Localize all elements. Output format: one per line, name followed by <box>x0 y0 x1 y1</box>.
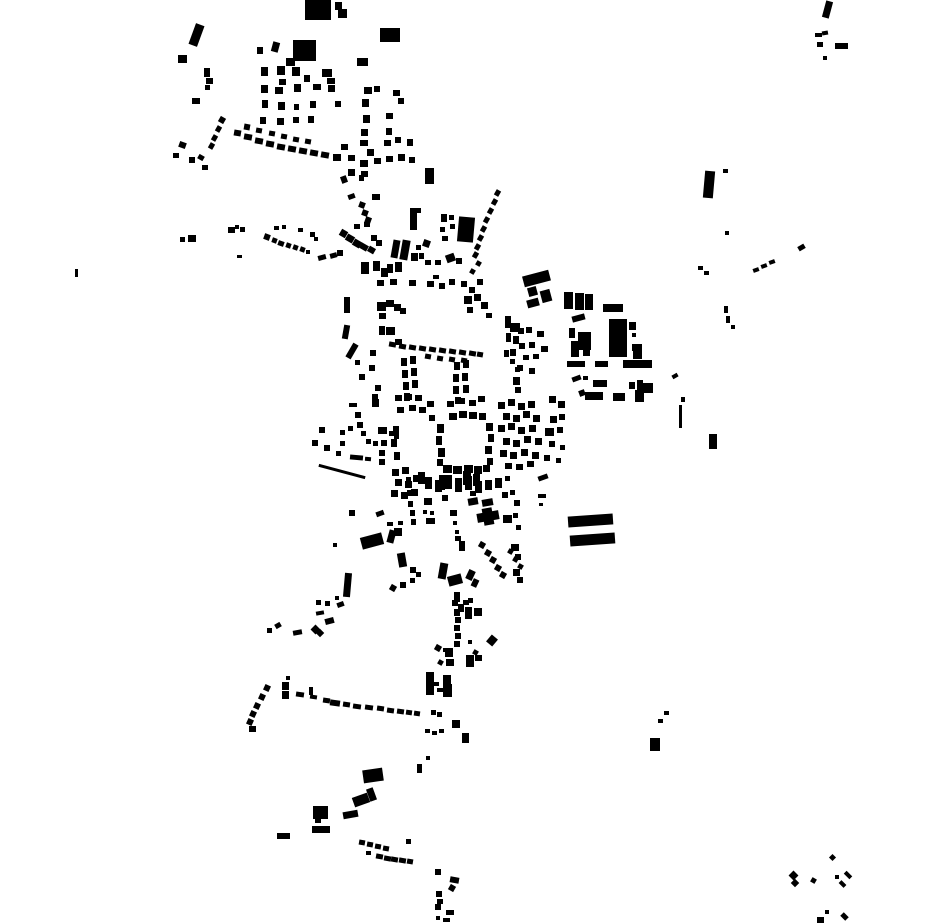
building-footprint <box>348 155 355 161</box>
building-footprint <box>410 510 415 516</box>
building-footprint <box>294 84 301 92</box>
building-footprint <box>349 510 355 516</box>
building-footprint <box>261 85 268 93</box>
building-footprint <box>835 875 839 879</box>
building-footprint <box>329 252 337 259</box>
building-footprint <box>575 293 584 310</box>
building-footprint <box>246 718 254 726</box>
building-footprint <box>395 479 402 486</box>
building-footprint <box>439 475 445 490</box>
building-footprint <box>593 380 607 387</box>
building-footprint <box>308 116 314 123</box>
building-footprint <box>556 458 561 463</box>
building-footprint <box>486 207 493 215</box>
building-footprint <box>416 245 421 250</box>
building-footprint <box>373 441 378 446</box>
building-footprint <box>437 659 444 666</box>
building-footprint <box>397 407 404 413</box>
building-footprint <box>454 625 460 631</box>
building-footprint <box>503 515 512 523</box>
building-footprint <box>723 169 728 173</box>
building-footprint <box>522 269 551 287</box>
building-footprint <box>288 145 297 152</box>
building-footprint <box>263 233 271 241</box>
building-footprint <box>400 582 406 588</box>
building-footprint <box>379 459 385 465</box>
building-footprint <box>260 117 266 124</box>
building-footprint <box>474 294 481 301</box>
building-footprint <box>523 355 529 360</box>
building-footprint <box>537 473 548 481</box>
building-footprint <box>503 438 510 445</box>
building-footprint <box>412 380 418 388</box>
building-footprint <box>462 733 469 743</box>
building-footprint <box>294 104 299 110</box>
building-footprint <box>415 208 421 213</box>
building-footprint <box>416 572 421 577</box>
building-footprint <box>324 445 330 451</box>
building-footprint <box>336 600 344 607</box>
building-footprint <box>569 328 575 338</box>
building-footprint <box>499 571 507 579</box>
building-footprint <box>328 85 335 92</box>
building-footprint <box>277 240 284 247</box>
building-footprint <box>341 144 348 150</box>
building-footprint <box>463 360 469 368</box>
building-footprint <box>500 450 507 457</box>
building-footprint <box>632 333 636 337</box>
building-footprint <box>361 262 369 274</box>
building-footprint <box>430 511 434 515</box>
building-footprint <box>285 242 291 248</box>
building-footprint <box>381 440 387 446</box>
building-footprint <box>442 236 448 241</box>
building-footprint <box>387 522 393 526</box>
building-footprint <box>398 521 403 525</box>
building-footprint <box>441 214 447 222</box>
building-footprint <box>478 541 486 549</box>
building-footprint <box>643 383 653 393</box>
building-footprint <box>425 353 432 359</box>
building-footprint <box>75 269 78 277</box>
building-footprint <box>438 448 445 457</box>
building-footprint <box>475 260 482 267</box>
building-footprint <box>435 904 441 910</box>
building-footprint <box>533 415 540 422</box>
building-footprint <box>519 343 525 349</box>
building-footprint <box>188 235 196 242</box>
building-footprint <box>372 399 379 407</box>
building-footprint <box>437 899 443 904</box>
building-footprint <box>375 385 381 391</box>
building-footprint <box>446 910 454 915</box>
building-footprint <box>462 373 468 381</box>
building-footprint <box>478 396 485 402</box>
building-footprint <box>407 490 412 496</box>
building-footprint <box>315 818 321 823</box>
building-footprint <box>489 556 497 564</box>
building-footprint <box>513 513 518 518</box>
building-footprint <box>296 691 305 697</box>
building-footprint <box>461 281 467 287</box>
building-footprint <box>271 237 277 243</box>
building-footprint <box>292 67 300 76</box>
building-footprint <box>348 426 353 431</box>
building-footprint <box>340 175 348 184</box>
building-footprint <box>333 543 337 547</box>
building-footprint <box>396 708 404 714</box>
building-footprint <box>434 644 442 652</box>
building-footprint <box>513 569 520 576</box>
building-footprint <box>595 361 608 367</box>
building-footprint <box>539 503 543 506</box>
building-footprint <box>398 98 404 104</box>
building-footprint <box>390 240 400 259</box>
building-footprint <box>253 702 261 710</box>
building-footprint <box>330 699 341 706</box>
building-footprint <box>375 509 384 516</box>
building-footprint <box>459 411 467 418</box>
building-footprint <box>292 629 302 635</box>
building-footprint <box>379 450 385 456</box>
building-footprint <box>436 891 442 897</box>
building-footprint <box>293 117 299 123</box>
building-footprint <box>465 607 472 619</box>
building-footprint <box>389 584 397 592</box>
building-footprint <box>406 839 411 844</box>
building-footprint <box>318 463 365 478</box>
building-footprint <box>537 331 544 337</box>
building-footprint <box>442 495 448 501</box>
building-footprint <box>407 139 413 146</box>
building-footprint <box>312 440 318 446</box>
building-footprint <box>529 425 536 432</box>
building-footprint <box>583 376 588 380</box>
building-footprint <box>510 452 517 459</box>
building-footprint <box>228 227 235 233</box>
building-footprint <box>518 427 525 434</box>
building-footprint <box>391 439 397 447</box>
building-footprint <box>372 194 380 200</box>
building-footprint <box>583 348 590 356</box>
building-footprint <box>249 726 256 732</box>
building-footprint <box>791 879 799 887</box>
building-footprint <box>218 116 226 124</box>
building-footprint <box>298 228 303 232</box>
building-footprint <box>411 253 418 261</box>
building-footprint <box>299 246 305 252</box>
building-footprint <box>316 600 321 605</box>
building-footprint <box>453 386 459 394</box>
building-footprint <box>459 541 465 551</box>
building-footprint <box>240 227 245 232</box>
building-footprint <box>482 216 489 224</box>
building-footprint <box>498 425 505 432</box>
building-footprint <box>317 254 326 261</box>
building-footprint <box>293 136 300 142</box>
building-footprint <box>564 292 573 309</box>
building-footprint <box>436 916 440 920</box>
building-footprint <box>567 513 613 527</box>
building-footprint <box>335 596 339 600</box>
building-footprint <box>418 345 426 351</box>
figure-ground-map <box>0 0 930 924</box>
building-footprint <box>383 845 390 851</box>
building-footprint <box>391 490 398 497</box>
building-footprint <box>390 279 397 285</box>
building-footprint <box>342 325 350 340</box>
building-footprint <box>529 368 535 374</box>
building-footprint <box>817 917 824 923</box>
building-footprint <box>455 536 461 541</box>
building-footprint <box>282 691 289 699</box>
building-footprint <box>349 403 357 407</box>
building-footprint <box>432 731 437 735</box>
building-footprint <box>313 84 321 90</box>
building-footprint <box>373 261 380 271</box>
building-footprint <box>304 75 310 82</box>
building-footprint <box>409 405 416 411</box>
building-footprint <box>387 264 393 273</box>
building-footprint <box>426 682 434 695</box>
building-footprint <box>485 480 492 490</box>
building-footprint <box>724 306 728 313</box>
building-footprint <box>725 231 729 235</box>
building-footprint <box>403 382 409 390</box>
building-footprint <box>424 498 432 505</box>
building-footprint <box>567 361 585 367</box>
building-footprint <box>353 703 362 709</box>
building-footprint <box>312 826 330 833</box>
building-footprint <box>379 326 385 335</box>
building-footprint <box>398 857 406 863</box>
building-footprint <box>709 434 717 449</box>
building-footprint <box>524 436 531 443</box>
building-footprint <box>321 151 330 158</box>
building-footprint <box>518 403 525 410</box>
building-footprint <box>361 129 368 136</box>
building-footprint <box>407 858 414 864</box>
building-footprint <box>437 712 442 717</box>
building-footprint <box>244 133 253 140</box>
building-footprint <box>471 251 478 259</box>
building-footprint <box>698 266 703 270</box>
building-footprint <box>411 489 418 496</box>
building-footprint <box>635 390 644 402</box>
building-footprint <box>571 341 579 357</box>
building-footprint <box>560 445 565 450</box>
building-footprint <box>342 701 350 707</box>
building-footprint <box>270 41 279 52</box>
building-footprint <box>549 441 555 447</box>
building-footprint <box>549 396 556 403</box>
building-footprint <box>486 423 493 431</box>
building-footprint <box>458 349 466 355</box>
building-footprint <box>374 86 380 92</box>
building-footprint <box>437 424 444 433</box>
building-footprint <box>453 466 462 474</box>
building-footprint <box>474 608 482 616</box>
building-footprint <box>468 640 472 644</box>
building-footprint <box>365 457 371 462</box>
building-footprint <box>409 280 416 286</box>
building-footprint <box>401 358 407 366</box>
building-footprint <box>411 368 417 376</box>
building-footprint <box>237 255 242 258</box>
building-footprint <box>495 478 502 488</box>
building-footprint <box>324 617 334 625</box>
building-footprint <box>467 307 473 313</box>
building-footprint <box>393 90 400 96</box>
building-footprint <box>358 201 366 209</box>
building-footprint <box>345 343 358 360</box>
building-footprint <box>510 349 516 356</box>
building-footprint <box>423 510 427 514</box>
building-footprint <box>435 869 441 875</box>
building-footprint <box>428 346 436 352</box>
building-footprint <box>488 434 494 442</box>
building-footprint <box>449 279 455 285</box>
building-footprint <box>374 158 381 164</box>
building-footprint <box>513 415 520 422</box>
building-footprint <box>188 23 204 47</box>
building-footprint <box>821 0 832 18</box>
building-footprint <box>515 387 521 393</box>
building-footprint <box>180 237 185 242</box>
building-footprint <box>481 302 488 309</box>
building-footprint <box>360 140 368 146</box>
building-footprint <box>454 609 460 616</box>
building-footprint <box>277 833 290 839</box>
building-footprint <box>815 33 822 37</box>
building-footprint <box>210 134 217 142</box>
building-footprint <box>558 401 565 408</box>
building-footprint <box>274 226 279 230</box>
building-footprint <box>425 260 431 265</box>
building-footprint <box>431 710 436 715</box>
building-footprint <box>349 454 362 460</box>
building-footprint <box>376 705 384 711</box>
building-footprint <box>681 397 685 402</box>
building-footprint <box>450 510 457 516</box>
building-footprint <box>475 655 482 661</box>
building-footprint <box>340 430 345 435</box>
building-footprint <box>508 399 515 406</box>
building-footprint <box>386 707 394 713</box>
building-footprint <box>427 401 434 407</box>
building-footprint <box>277 143 286 150</box>
building-footprint <box>309 695 316 700</box>
building-footprint <box>473 243 480 251</box>
building-footprint <box>214 125 221 133</box>
building-footprint <box>281 133 288 139</box>
building-footprint <box>443 918 450 922</box>
building-footprint <box>453 521 457 525</box>
building-footprint <box>511 544 519 551</box>
building-footprint <box>360 160 368 167</box>
building-footprint <box>469 412 477 419</box>
building-footprint <box>406 477 411 483</box>
building-footprint <box>679 405 682 428</box>
building-footprint <box>469 268 476 275</box>
building-footprint <box>731 325 735 329</box>
building-footprint <box>261 67 268 76</box>
building-footprint <box>422 239 431 248</box>
building-footprint <box>249 710 257 718</box>
building-footprint <box>364 87 372 94</box>
building-footprint <box>485 446 492 454</box>
building-footprint <box>768 259 775 265</box>
building-footprint <box>425 729 430 733</box>
building-footprint <box>363 115 370 123</box>
building-footprint <box>354 224 360 229</box>
building-footprint <box>408 344 416 350</box>
building-footprint <box>557 427 563 433</box>
building-footprint <box>446 659 454 666</box>
building-footprint <box>366 246 375 255</box>
building-footprint <box>411 519 416 525</box>
building-footprint <box>464 296 472 304</box>
building-footprint <box>314 237 318 241</box>
building-footprint <box>306 250 310 254</box>
building-footprint <box>319 427 325 433</box>
building-footprint <box>361 431 366 436</box>
building-footprint <box>355 412 361 418</box>
building-footprint <box>545 428 554 436</box>
building-footprint <box>340 441 345 446</box>
building-footprint <box>835 43 848 49</box>
building-footprint <box>516 464 523 470</box>
building-footprint <box>367 841 374 847</box>
building-footprint <box>629 382 635 389</box>
building-footprint <box>454 362 460 370</box>
building-footprint <box>414 710 421 716</box>
building-footprint <box>521 449 528 456</box>
building-footprint <box>457 216 475 242</box>
building-footprint <box>333 154 341 161</box>
building-footprint <box>439 283 445 289</box>
building-footprint <box>316 629 324 637</box>
building-footprint <box>493 189 500 197</box>
building-footprint <box>435 260 441 265</box>
building-footprint <box>282 682 289 690</box>
building-footprint <box>469 400 476 406</box>
building-footprint <box>541 346 548 352</box>
building-footprint <box>571 313 585 322</box>
building-footprint <box>760 263 767 269</box>
building-footprint <box>266 140 275 147</box>
building-footprint <box>454 641 460 647</box>
building-footprint <box>327 78 335 84</box>
building-footprint <box>325 601 330 606</box>
building-footprint <box>468 350 476 356</box>
building-footprint <box>427 281 434 287</box>
building-footprint <box>437 355 444 361</box>
building-footprint <box>529 342 535 348</box>
building-footprint <box>455 633 461 639</box>
building-footprint <box>449 215 454 220</box>
building-footprint <box>406 709 413 715</box>
building-footprint <box>623 360 652 368</box>
building-footprint <box>357 58 368 66</box>
building-footprint <box>205 85 210 90</box>
building-footprint <box>455 617 461 623</box>
building-footprint <box>481 498 493 507</box>
building-footprint <box>397 552 407 567</box>
building-footprint <box>204 68 210 77</box>
building-footprint <box>369 365 375 371</box>
building-footprint <box>269 130 276 136</box>
